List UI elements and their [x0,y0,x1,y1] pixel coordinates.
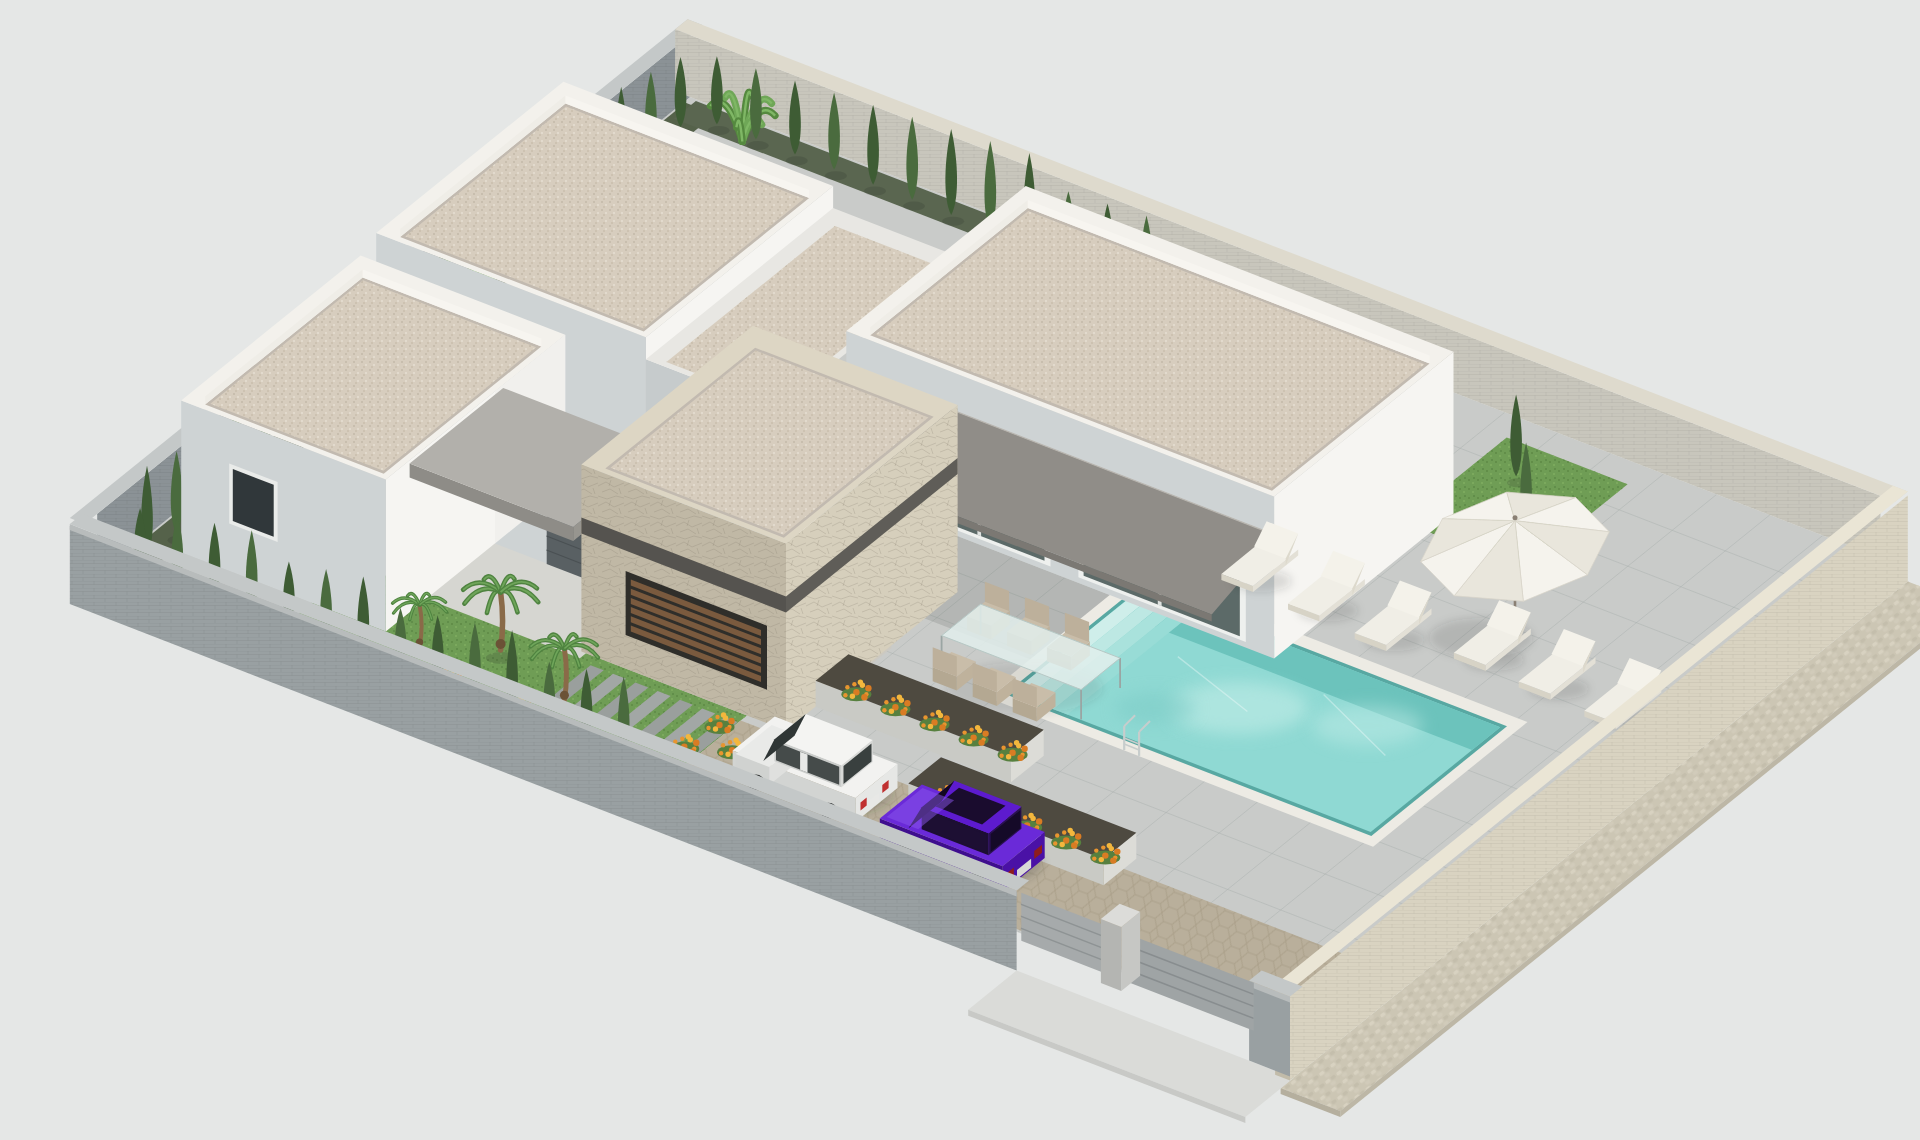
villa-rendering-canvas [0,0,1920,1140]
architectural-rendering: Modern single-storey white villa with fl… [0,0,1920,1140]
